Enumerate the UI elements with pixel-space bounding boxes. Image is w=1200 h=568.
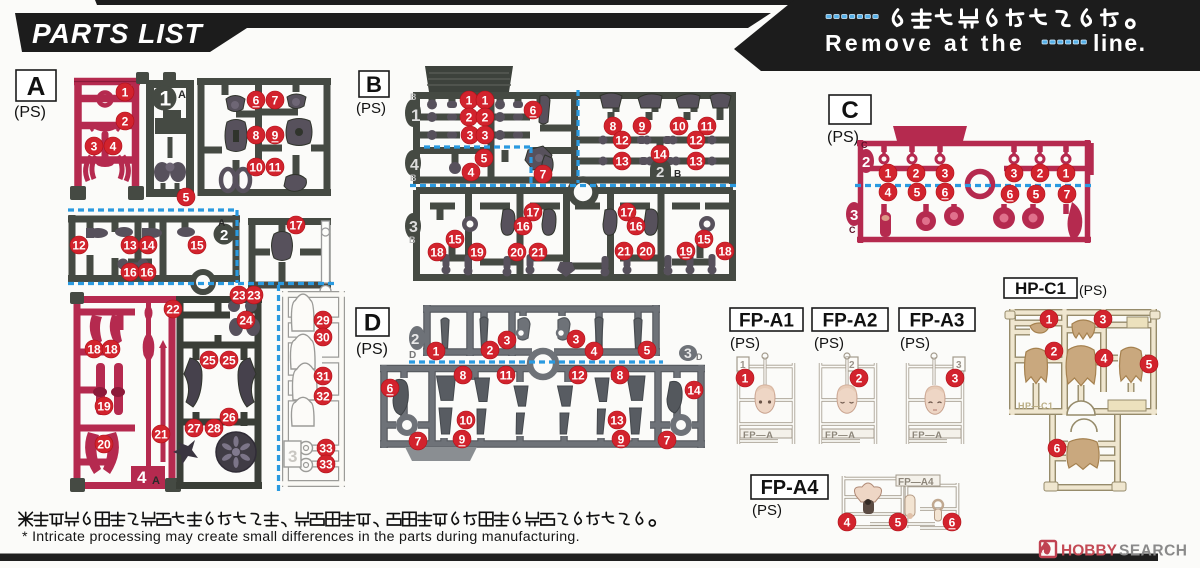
svg-text:HOBBY: HOBBY: [1061, 543, 1118, 560]
svg-text:2: 2: [856, 371, 863, 385]
svg-text:A: A: [178, 89, 186, 101]
svg-text:3: 3: [467, 128, 474, 142]
svg-text:7: 7: [664, 433, 671, 447]
svg-text:6: 6: [949, 515, 956, 529]
svg-text:HP-C1: HP-C1: [1015, 279, 1066, 298]
svg-text:2: 2: [220, 227, 228, 244]
svg-text:18: 18: [87, 342, 101, 356]
svg-text:18: 18: [430, 245, 444, 259]
svg-text:3: 3: [573, 332, 580, 346]
svg-text:2: 2: [656, 164, 664, 181]
svg-text:30: 30: [316, 330, 330, 344]
svg-text:17: 17: [289, 218, 303, 232]
svg-text:25: 25: [222, 353, 236, 367]
svg-text:7: 7: [540, 167, 547, 181]
svg-text:B: B: [410, 92, 417, 102]
svg-text:1: 1: [122, 85, 129, 99]
svg-text:22: 22: [166, 302, 180, 316]
svg-text:19: 19: [470, 245, 484, 259]
svg-text:(PS): (PS): [356, 341, 388, 358]
svg-text:FP—A: FP—A: [825, 430, 856, 441]
svg-text:5: 5: [183, 190, 190, 204]
svg-text:26: 26: [222, 410, 236, 424]
svg-text:33: 33: [319, 441, 333, 455]
svg-text:7: 7: [272, 93, 279, 107]
svg-text:4: 4: [410, 157, 419, 174]
svg-text:2: 2: [487, 343, 494, 357]
svg-text:5: 5: [1033, 187, 1040, 201]
svg-text:23: 23: [247, 288, 261, 302]
svg-text:28: 28: [207, 421, 221, 435]
svg-text:33: 33: [319, 457, 333, 471]
svg-text:4: 4: [1101, 351, 1108, 365]
svg-text:(PS): (PS): [14, 104, 46, 121]
svg-text:9: 9: [618, 432, 625, 446]
svg-text:1: 1: [1046, 312, 1053, 326]
svg-text:4: 4: [110, 139, 117, 153]
svg-text:7: 7: [1064, 187, 1071, 201]
svg-text:3: 3: [942, 166, 949, 180]
svg-text:11: 11: [269, 160, 282, 174]
svg-text:(PS): (PS): [730, 335, 760, 352]
svg-text:6: 6: [253, 93, 260, 107]
svg-text:B: B: [674, 169, 681, 180]
svg-text:13: 13: [610, 413, 624, 427]
svg-text:2: 2: [466, 110, 473, 124]
svg-text:4: 4: [468, 165, 475, 179]
svg-text:* Intricate processing may cre: * Intricate processing may create small …: [22, 529, 580, 545]
svg-text:12: 12: [615, 133, 629, 147]
svg-text:18: 18: [104, 342, 118, 356]
svg-text:29: 29: [316, 313, 330, 327]
svg-text:32: 32: [316, 389, 330, 403]
svg-text:10: 10: [672, 119, 686, 133]
svg-text:11: 11: [701, 119, 714, 133]
svg-text:8: 8: [617, 368, 624, 382]
svg-text:2: 2: [849, 360, 855, 371]
svg-text:12: 12: [571, 368, 585, 382]
svg-text:4: 4: [844, 515, 851, 529]
svg-text:C: C: [841, 97, 858, 124]
svg-text:line.: line.: [1093, 30, 1147, 56]
svg-text:SEARCH: SEARCH: [1119, 543, 1187, 560]
svg-text:3: 3: [409, 219, 418, 236]
svg-text:13: 13: [689, 154, 703, 168]
svg-text:14: 14: [687, 383, 701, 397]
svg-text:15: 15: [448, 232, 462, 246]
svg-text:(PS): (PS): [752, 502, 782, 519]
svg-text:7: 7: [415, 434, 422, 448]
svg-text:D: D: [409, 350, 416, 361]
svg-text:20: 20: [639, 244, 653, 258]
svg-text:A: A: [218, 218, 225, 229]
svg-text:(PS): (PS): [1079, 282, 1107, 298]
svg-text:15: 15: [190, 238, 204, 252]
svg-text:9: 9: [459, 432, 466, 446]
svg-text:31: 31: [316, 369, 330, 383]
svg-text:19: 19: [97, 399, 111, 413]
svg-text:10: 10: [249, 160, 263, 174]
svg-text:(PS): (PS): [814, 335, 844, 352]
svg-text:14: 14: [141, 238, 155, 252]
svg-text:FP-A3: FP-A3: [910, 310, 965, 331]
svg-text:16: 16: [629, 219, 643, 233]
svg-text:18: 18: [718, 244, 732, 258]
svg-text:17: 17: [526, 205, 540, 219]
svg-text:6: 6: [387, 381, 394, 395]
svg-text:2: 2: [913, 166, 920, 180]
svg-text:4: 4: [137, 468, 147, 487]
svg-text:4: 4: [591, 344, 598, 358]
svg-text:17: 17: [620, 205, 634, 219]
svg-text:8: 8: [610, 119, 617, 133]
svg-text:1: 1: [466, 93, 473, 107]
svg-text:A: A: [27, 71, 46, 101]
svg-text:2: 2: [411, 331, 419, 348]
svg-text:6: 6: [1007, 187, 1014, 201]
svg-text:5: 5: [895, 515, 902, 529]
svg-text:11: 11: [500, 368, 513, 382]
svg-text:FP-A2: FP-A2: [823, 310, 878, 331]
svg-text:5: 5: [481, 151, 488, 165]
svg-text:14: 14: [653, 147, 667, 161]
svg-text:16: 16: [140, 265, 154, 279]
svg-text:3: 3: [850, 207, 858, 224]
svg-text:B: B: [410, 173, 417, 183]
svg-text:6: 6: [942, 185, 949, 199]
svg-text:(PS): (PS): [827, 129, 859, 146]
svg-text:21: 21: [531, 245, 545, 259]
svg-text:3: 3: [91, 139, 98, 153]
svg-text:8: 8: [253, 128, 260, 142]
svg-text:21: 21: [154, 427, 168, 441]
svg-text:6: 6: [1054, 441, 1061, 455]
svg-text:9: 9: [639, 119, 646, 133]
svg-text:5: 5: [1146, 357, 1153, 371]
svg-text:8: 8: [460, 368, 467, 382]
svg-text:13: 13: [123, 238, 137, 252]
svg-text:3: 3: [1100, 312, 1107, 326]
svg-text:B: B: [366, 72, 382, 97]
svg-text:2: 2: [862, 154, 870, 171]
svg-text:Remove at the: Remove at the: [825, 30, 1025, 56]
svg-text:16: 16: [516, 219, 530, 233]
svg-text:20: 20: [97, 437, 111, 451]
svg-text:(PS): (PS): [900, 335, 930, 352]
svg-text:3: 3: [288, 447, 297, 466]
svg-text:C: C: [861, 140, 868, 150]
svg-text:(PS): (PS): [356, 100, 386, 117]
svg-text:2: 2: [1037, 166, 1044, 180]
svg-text:D: D: [696, 352, 703, 362]
svg-text:1: 1: [1063, 166, 1070, 180]
svg-text:1: 1: [411, 106, 420, 125]
svg-text:3: 3: [482, 128, 489, 142]
svg-text:10: 10: [459, 413, 473, 427]
svg-text:13: 13: [615, 154, 629, 168]
svg-text:FP—A: FP—A: [743, 430, 774, 441]
svg-text:23: 23: [232, 288, 246, 302]
svg-text:1: 1: [885, 166, 892, 180]
svg-text:27: 27: [187, 421, 201, 435]
svg-text:3: 3: [952, 371, 959, 385]
svg-text:1: 1: [433, 344, 440, 358]
svg-text:12: 12: [689, 133, 703, 147]
svg-text:5: 5: [914, 185, 921, 199]
svg-text:19: 19: [679, 244, 693, 258]
svg-text:1: 1: [160, 88, 172, 111]
svg-text:HP—C1: HP—C1: [1018, 401, 1054, 411]
svg-text:3: 3: [1011, 166, 1018, 180]
svg-text:21: 21: [617, 244, 631, 258]
svg-text:C: C: [849, 225, 856, 235]
svg-text:12: 12: [72, 238, 86, 252]
svg-text:FP-A4: FP-A4: [761, 477, 820, 499]
svg-text:FP-A1: FP-A1: [739, 310, 794, 331]
svg-text:D: D: [364, 310, 381, 337]
svg-text:2: 2: [122, 114, 129, 128]
svg-text:2: 2: [1051, 344, 1058, 358]
svg-text:FP—A4: FP—A4: [898, 477, 934, 488]
svg-text:FP—A: FP—A: [912, 430, 943, 441]
svg-text:24: 24: [239, 313, 253, 327]
svg-text:20: 20: [510, 245, 524, 259]
svg-text:PARTS LIST: PARTS LIST: [32, 18, 205, 49]
svg-text:B: B: [409, 235, 416, 245]
svg-text:5: 5: [644, 343, 651, 357]
svg-text:1: 1: [742, 371, 749, 385]
svg-text:1: 1: [482, 93, 489, 107]
svg-text:3: 3: [684, 345, 692, 361]
svg-text:2: 2: [482, 110, 489, 124]
svg-text:3: 3: [504, 333, 511, 347]
svg-text:25: 25: [202, 353, 216, 367]
svg-text:16: 16: [123, 265, 137, 279]
svg-text:6: 6: [530, 103, 537, 117]
svg-text:A: A: [152, 475, 160, 487]
svg-text:15: 15: [697, 232, 711, 246]
svg-text:4: 4: [885, 185, 892, 199]
svg-text:9: 9: [272, 128, 279, 142]
